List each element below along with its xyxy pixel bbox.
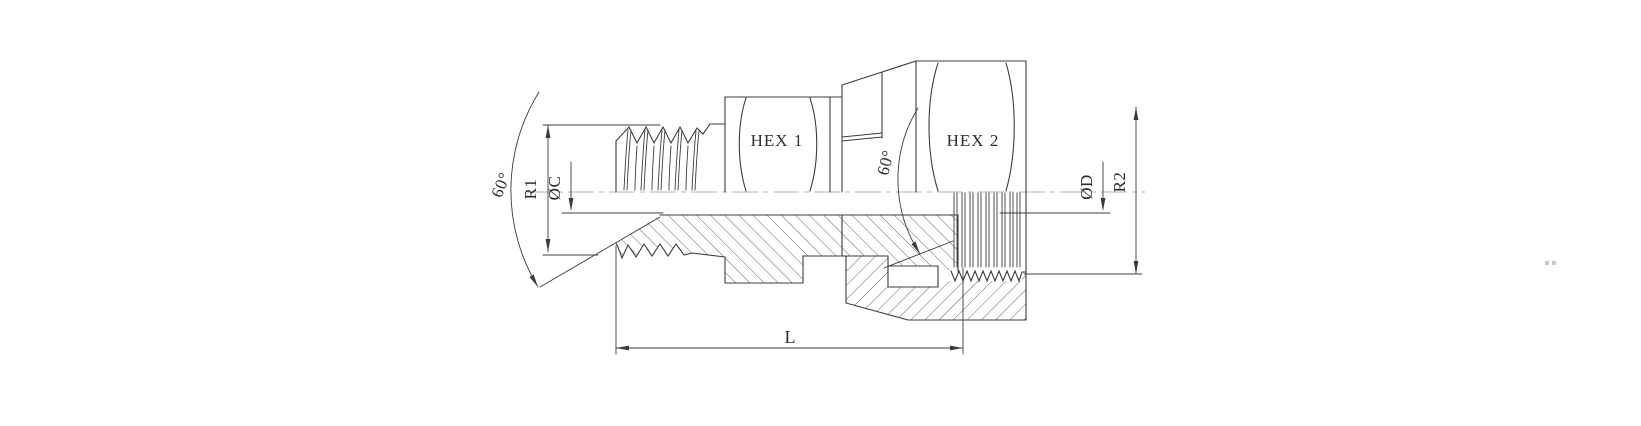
arrowhead	[616, 346, 629, 351]
male-thread-view	[616, 124, 725, 192]
arrowhead	[1134, 261, 1139, 274]
nut-collar-lines	[842, 61, 916, 141]
female-thread-section	[951, 193, 1026, 281]
arrowhead	[546, 125, 551, 138]
dia-d-label: ØD	[1077, 174, 1096, 200]
length-label: L	[785, 327, 796, 347]
engineering-drawing-canvas: HEX 1 HEX 2 R1 ØC 60° 60° ØD R2 L	[0, 0, 1641, 426]
arrowhead	[1101, 198, 1106, 211]
dia-c-label: ØC	[545, 176, 564, 201]
arrowhead	[950, 346, 963, 351]
fitting-section-drawing: HEX 1 HEX 2 R1 ØC 60° 60° ØD R2 L	[0, 0, 1641, 426]
arrowhead	[546, 239, 551, 252]
arrowhead	[569, 198, 574, 211]
section-hatch-body	[616, 215, 958, 283]
arrowhead	[529, 275, 540, 289]
r1-label: R1	[521, 179, 540, 200]
angle-left-label: 60°	[487, 170, 514, 201]
dim-dia-c	[562, 162, 663, 213]
hex2-label: HEX 2	[947, 131, 1000, 150]
angle-right-label: 60°	[873, 148, 898, 177]
stray-dots	[1545, 261, 1556, 265]
hex1-label: HEX 1	[751, 131, 804, 150]
arrowhead	[1134, 107, 1139, 120]
r2-label: R2	[1110, 172, 1129, 193]
